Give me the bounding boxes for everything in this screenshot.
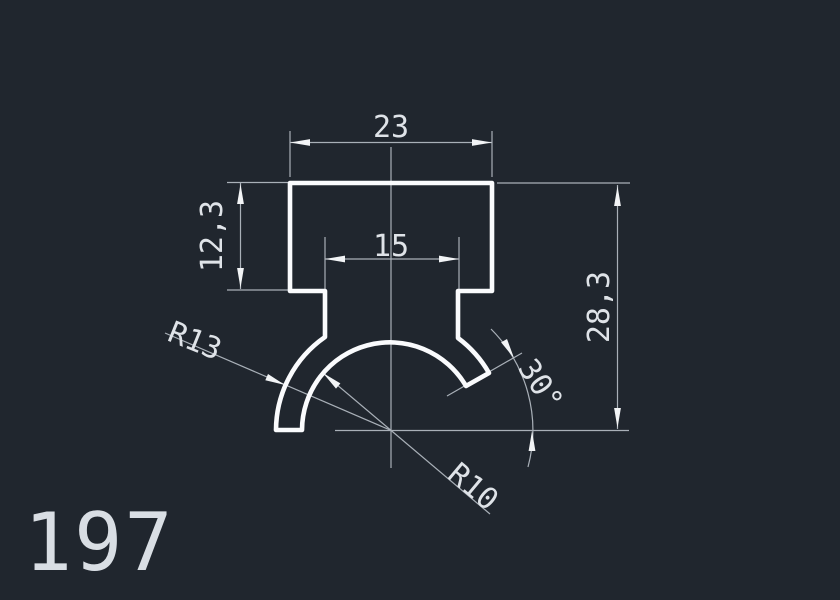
label-head-height: 12,3 bbox=[195, 200, 230, 272]
profile-drawing: 23 15 12,3 28,3 R13 R10 30° 197 bbox=[0, 0, 840, 600]
label-slot-width: 15 bbox=[373, 229, 409, 264]
label-total-height: 28,3 bbox=[582, 271, 617, 343]
label-top-width: 23 bbox=[373, 110, 409, 145]
cad-viewport[interactable]: 23 15 12,3 28,3 R13 R10 30° 197 bbox=[0, 0, 840, 600]
part-number: 197 bbox=[24, 496, 175, 589]
